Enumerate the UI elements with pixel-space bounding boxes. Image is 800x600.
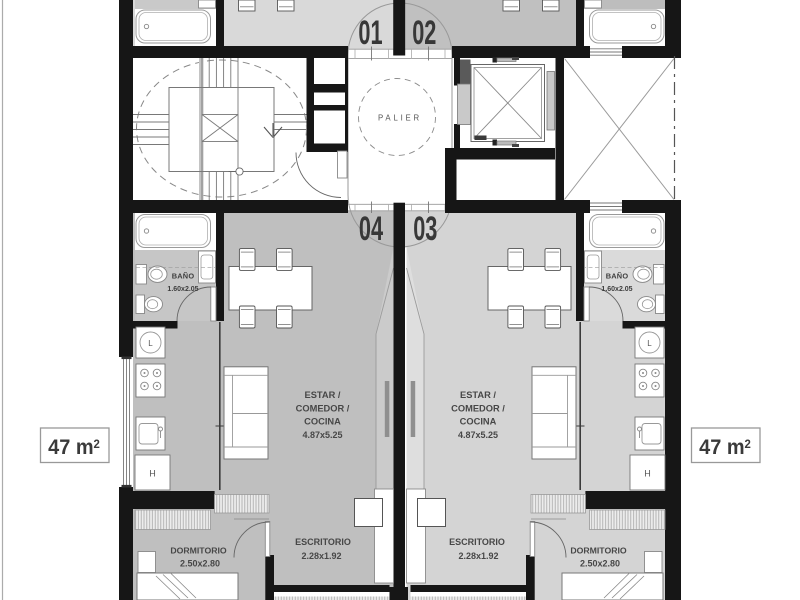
svg-text:BAÑO: BAÑO — [172, 272, 195, 281]
svg-text:COCINA: COCINA — [304, 417, 341, 427]
svg-text:PALIER: PALIER — [378, 114, 422, 123]
svg-text:2.50x2.80: 2.50x2.80 — [580, 559, 620, 569]
svg-text:01: 01 — [358, 14, 382, 52]
svg-text:2.50x2.80: 2.50x2.80 — [180, 559, 220, 569]
svg-text:COMEDOR /: COMEDOR / — [296, 403, 350, 413]
svg-text:1.60x2.05: 1.60x2.05 — [167, 286, 198, 293]
svg-text:02: 02 — [412, 14, 436, 52]
svg-text:47 m2: 47 m2 — [699, 436, 751, 460]
svg-text:H: H — [149, 469, 156, 479]
svg-text:03: 03 — [413, 210, 437, 248]
svg-text:ESCRITORIO: ESCRITORIO — [295, 537, 351, 547]
svg-text:2.28x1.92: 2.28x1.92 — [301, 551, 341, 561]
svg-text:DORMITORIO: DORMITORIO — [570, 546, 627, 556]
svg-text:H: H — [644, 469, 651, 479]
svg-text:ESCRITORIO: ESCRITORIO — [449, 537, 505, 547]
svg-text:COMEDOR /: COMEDOR / — [451, 403, 505, 413]
svg-text:L: L — [647, 339, 652, 348]
svg-text:BAÑO: BAÑO — [606, 272, 629, 281]
svg-text:DORMITORIO: DORMITORIO — [170, 546, 227, 556]
svg-text:ESTAR /: ESTAR / — [460, 390, 496, 400]
svg-text:4.87x5.25: 4.87x5.25 — [302, 430, 342, 440]
svg-text:L: L — [148, 339, 153, 348]
svg-text:ESTAR /: ESTAR / — [305, 390, 341, 400]
svg-text:4.87x5.25: 4.87x5.25 — [458, 430, 498, 440]
svg-text:COCINA: COCINA — [460, 417, 497, 427]
svg-text:1.60x2.05: 1.60x2.05 — [601, 286, 632, 293]
svg-text:04: 04 — [359, 210, 383, 248]
svg-text:47 m2: 47 m2 — [48, 436, 100, 460]
svg-text:2.28x1.92: 2.28x1.92 — [458, 551, 498, 561]
